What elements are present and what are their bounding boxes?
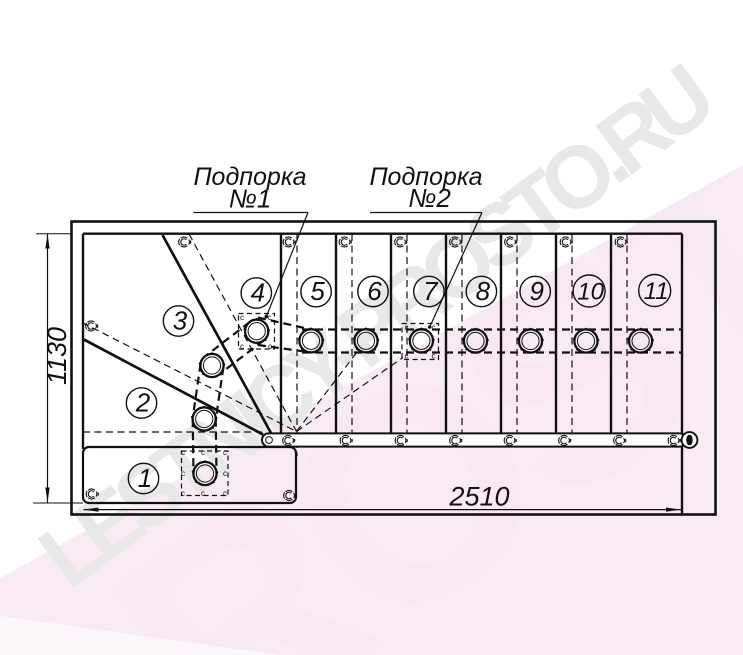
svg-text:5: 5	[310, 276, 325, 306]
svg-text:8: 8	[476, 276, 491, 306]
svg-text:c: c	[268, 313, 272, 322]
svg-text:c: c	[201, 448, 205, 457]
svg-text:3: 3	[173, 306, 188, 336]
svg-text:c: c	[201, 489, 205, 498]
svg-text:c: c	[223, 448, 227, 457]
svg-text:9: 9	[529, 276, 543, 306]
svg-text:c: c	[405, 323, 409, 332]
svg-text:c: c	[240, 313, 244, 322]
svg-text:c: c	[432, 323, 436, 332]
svg-text:6: 6	[367, 276, 382, 306]
svg-text:c: c	[223, 489, 227, 498]
svg-text:c: c	[432, 352, 436, 361]
svg-text:2510: 2510	[448, 482, 509, 512]
svg-text:№2: №2	[408, 183, 451, 213]
svg-text:c: c	[223, 469, 227, 478]
svg-text:c: c	[181, 489, 185, 498]
svg-text:4: 4	[251, 278, 265, 308]
svg-text:c: c	[181, 448, 185, 457]
svg-text:11: 11	[644, 278, 669, 305]
svg-text:10: 10	[577, 279, 604, 306]
svg-text:№1: №1	[229, 184, 272, 214]
svg-text:1130: 1130	[42, 327, 72, 385]
svg-text:c: c	[240, 342, 244, 351]
svg-text:c: c	[181, 469, 185, 478]
svg-text:c: c	[405, 352, 409, 361]
svg-text:2: 2	[135, 388, 151, 418]
svg-text:1: 1	[138, 463, 152, 493]
svg-text:7: 7	[423, 276, 439, 306]
svg-text:c: c	[268, 342, 272, 351]
